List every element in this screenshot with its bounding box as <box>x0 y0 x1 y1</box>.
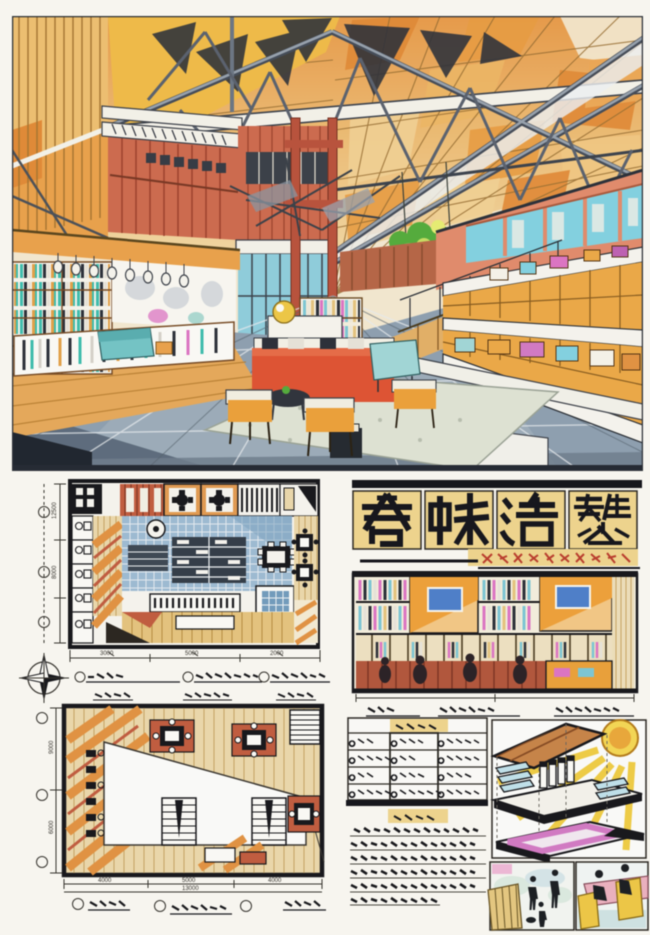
svg-text:6000: 6000 <box>49 820 55 834</box>
svg-text:4000: 4000 <box>268 878 282 884</box>
svg-text:4000: 4000 <box>98 878 112 884</box>
svg-text:12500: 12500 <box>52 502 58 519</box>
svg-text:2000: 2000 <box>270 651 284 657</box>
svg-text:9000: 9000 <box>49 740 55 754</box>
svg-text:13000: 13000 <box>182 886 199 892</box>
svg-text:3000: 3000 <box>100 651 114 657</box>
svg-text:5000: 5000 <box>182 878 196 884</box>
svg-text:8000: 8000 <box>52 565 58 579</box>
svg-text:5000: 5000 <box>185 651 199 657</box>
